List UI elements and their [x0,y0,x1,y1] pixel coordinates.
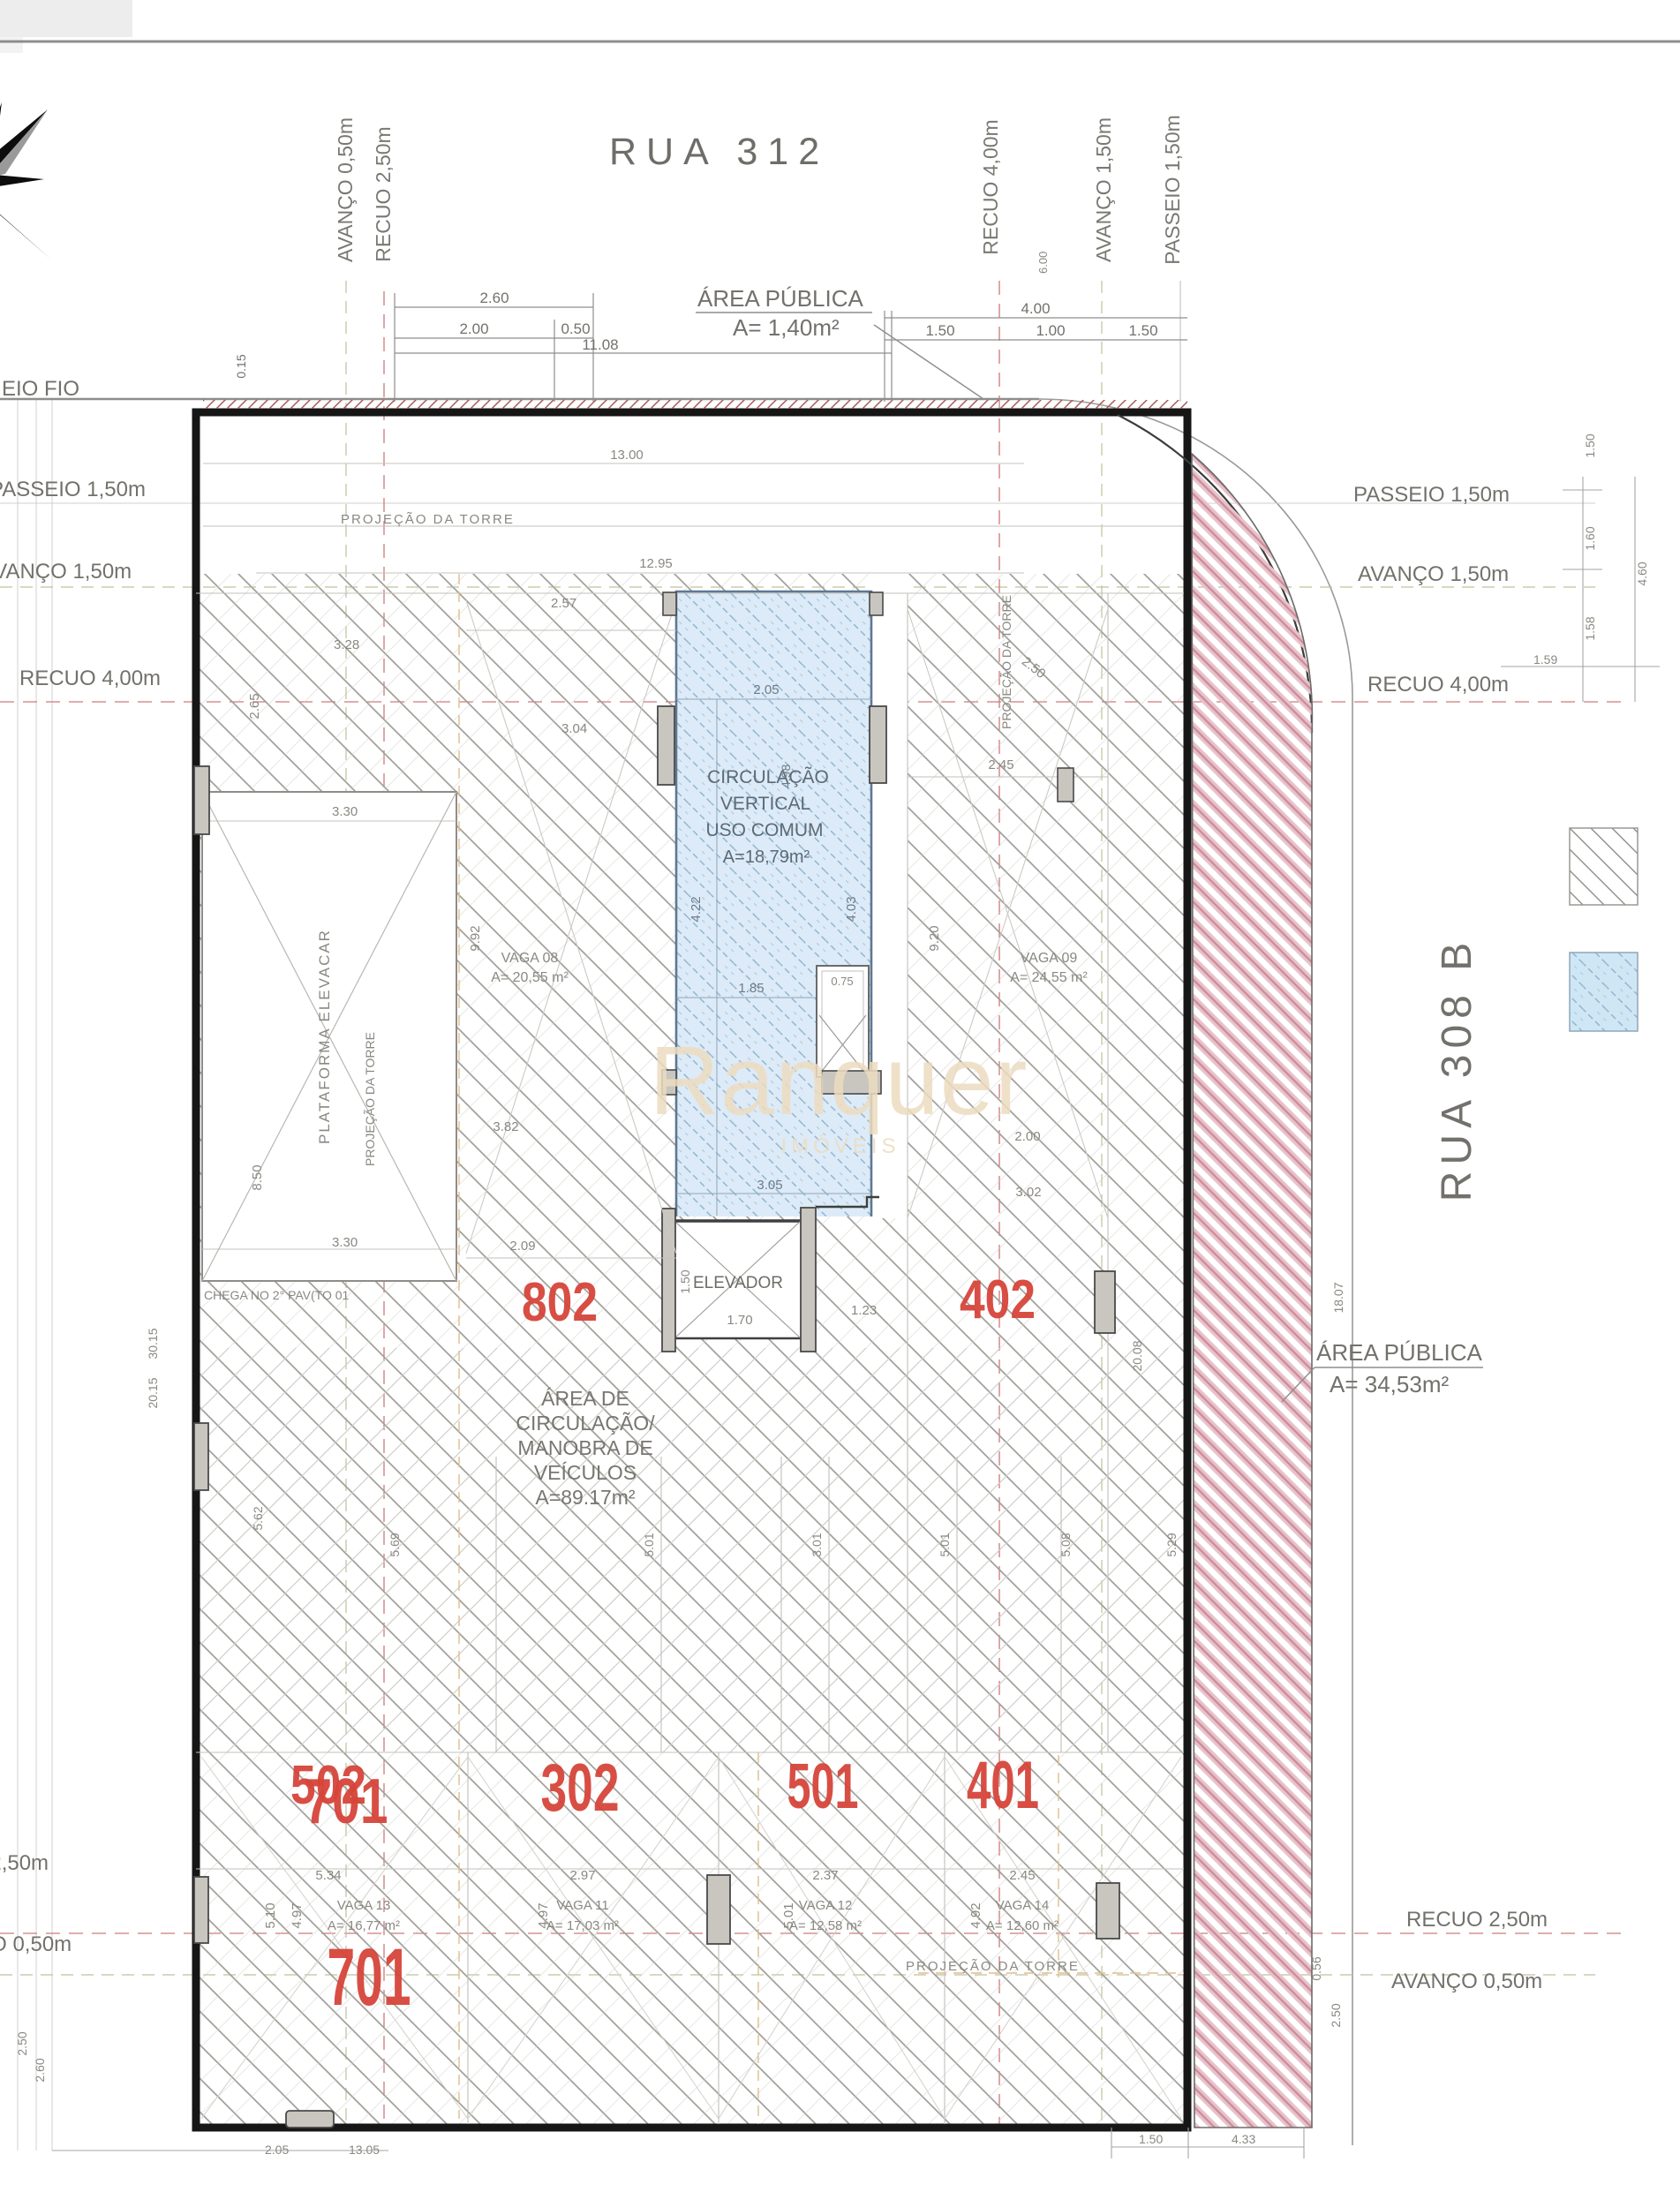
svg-text:5.01: 5.01 [938,1533,952,1556]
svg-text:0.56: 0.56 [1309,1956,1323,1980]
svg-text:1.58: 1.58 [1583,616,1597,640]
svg-text:18.07: 18.07 [1331,1282,1345,1313]
svg-text:A=89.17m²: A=89.17m² [535,1486,635,1509]
svg-text:3.82: 3.82 [493,1119,518,1134]
svg-text:RUA 312: RUA 312 [609,131,829,173]
svg-text:A= 12,58 m²: A= 12,58 m² [789,1918,862,1933]
svg-text:IMÓVEIS: IMÓVEIS [780,1134,900,1158]
svg-text:PLATAFORMA ELEVACAR: PLATAFORMA ELEVACAR [316,929,333,1144]
svg-text:0.15: 0.15 [234,354,248,378]
svg-text:20.08: 20.08 [1130,1340,1144,1371]
svg-text:9.92: 9.92 [468,925,483,951]
svg-text:RECUO 2,50m: RECUO 2,50m [1406,1908,1548,1932]
svg-text:EIO FIO: EIO FIO [2,377,79,401]
svg-text:AVANÇO 0,50m: AVANÇO 0,50m [334,117,357,262]
svg-text:USO COMUM: USO COMUM [706,820,824,840]
svg-text:CIRCULAÇÃO: CIRCULAÇÃO [707,766,829,787]
svg-text:A= 12,60 m²: A= 12,60 m² [986,1918,1058,1933]
svg-text:AVANÇO 1,50m: AVANÇO 1,50m [1358,562,1509,586]
svg-text:2.50: 2.50 [15,2031,29,2055]
svg-text:4.03: 4.03 [844,896,859,922]
svg-text:2.60: 2.60 [479,290,509,306]
svg-text:1.50: 1.50 [925,322,954,339]
svg-text:3.02: 3.02 [1015,1185,1041,1200]
svg-text:20.15: 20.15 [146,1377,160,1408]
svg-text:PASSEIO 1,50m: PASSEIO 1,50m [0,478,146,501]
svg-text:AVANÇO 0,50m: AVANÇO 0,50m [1391,1970,1542,1993]
svg-text:PROJEÇÃO DA TORRE: PROJEÇÃO DA TORRE [906,1959,1080,1974]
svg-text:11.08: 11.08 [582,336,618,353]
svg-text:ÁREA PÚBLICA: ÁREA PÚBLICA [697,285,864,312]
svg-text:1.59: 1.59 [1533,652,1557,667]
svg-text:A= 16,77 m²: A= 16,77 m² [328,1918,400,1933]
svg-text:PROJEÇÃO DA TORRE: PROJEÇÃO DA TORRE [341,512,515,527]
svg-text:2.50: 2.50 [1329,2003,1343,2027]
svg-text:3.04: 3.04 [561,721,587,736]
svg-text:3.05: 3.05 [757,1178,782,1193]
svg-text:5.01: 5.01 [781,1902,796,1928]
svg-text:5.10: 5.10 [263,1902,278,1928]
svg-text:3.30: 3.30 [332,804,358,819]
svg-text:4.60: 4.60 [1635,561,1649,585]
svg-text:3.30: 3.30 [332,1235,358,1250]
svg-text:VAGA 12: VAGA 12 [799,1898,853,1913]
svg-text:2.65: 2.65 [247,693,262,719]
svg-text:4.92: 4.92 [968,1902,983,1928]
svg-text:5.69: 5.69 [388,1533,402,1556]
svg-text:VAGA 11: VAGA 11 [556,1898,608,1913]
svg-text:PROJEÇÃO DA TORRE: PROJEÇÃO DA TORRE [999,595,1013,729]
svg-text:A= 24,55 m²: A= 24,55 m² [1010,970,1088,985]
svg-text:4.33: 4.33 [1232,2132,1255,2146]
svg-text:VEÍCULOS: VEÍCULOS [534,1461,637,1484]
svg-text:8.50: 8.50 [250,1164,265,1190]
svg-text:VAGA 13: VAGA 13 [337,1898,391,1913]
svg-text:2.09: 2.09 [509,1239,535,1254]
svg-text:5.34: 5.34 [315,1868,341,1883]
svg-text:0.75: 0.75 [831,975,853,988]
svg-text:4.98: 4.98 [779,765,793,788]
svg-text:A=18,79m²: A=18,79m² [723,847,810,867]
svg-text:30.15: 30.15 [146,1328,160,1359]
svg-text:13.00: 13.00 [610,448,644,463]
svg-text:AVANÇO 0,50m: AVANÇO 0,50m [0,1932,72,1956]
svg-text:1.50: 1.50 [1583,433,1597,457]
svg-text:PROJEÇÃO DA TORRE: PROJEÇÃO DA TORRE [363,1032,377,1166]
svg-text:CHEGA NO 2° PAV(TO 01: CHEGA NO 2° PAV(TO 01 [204,1288,350,1302]
svg-text:12.95: 12.95 [639,556,673,571]
svg-text:VAGA 09: VAGA 09 [1021,951,1078,966]
svg-text:VAGA 14: VAGA 14 [996,1898,1050,1913]
svg-text:5.29: 5.29 [1164,1533,1179,1556]
svg-text:302: 302 [541,1751,620,1826]
svg-text:VERTICAL: VERTICAL [720,794,810,814]
svg-text:PASSEIO 1,50m: PASSEIO 1,50m [1161,115,1184,265]
svg-text:AVANÇO 1,50m: AVANÇO 1,50m [0,560,132,584]
svg-text:VAGA 08: VAGA 08 [501,951,559,966]
svg-text:A= 17,03 m²: A= 17,03 m² [546,1918,619,1933]
svg-text:1.70: 1.70 [727,1313,752,1328]
svg-text:501: 501 [787,1751,859,1822]
svg-text:5.08: 5.08 [1058,1533,1073,1556]
svg-text:RECUO 4,00m: RECUO 4,00m [19,667,161,690]
svg-text:1.23: 1.23 [851,1303,877,1318]
svg-text:RECUO 2,50m: RECUO 2,50m [372,126,395,261]
svg-text:4.22: 4.22 [689,896,704,922]
svg-text:CIRCULAÇÃO/: CIRCULAÇÃO/ [516,1412,655,1435]
svg-text:5.01: 5.01 [642,1533,656,1556]
svg-text:5.62: 5.62 [251,1506,265,1530]
svg-text:4.97: 4.97 [536,1902,551,1928]
svg-text:2.05: 2.05 [753,682,779,697]
svg-text:A= 1,40m²: A= 1,40m² [733,314,840,341]
svg-text:RECUO 4,00m: RECUO 4,00m [979,119,1002,254]
svg-text:1.85: 1.85 [738,981,764,996]
svg-text:A= 20,55 m²: A= 20,55 m² [491,970,569,985]
svg-text:RECUO 4,00m: RECUO 4,00m [1367,673,1509,697]
svg-text:ÁREA DE: ÁREA DE [541,1387,629,1410]
svg-text:1.00: 1.00 [1036,322,1065,339]
svg-text:3.28: 3.28 [334,637,359,652]
svg-text:701: 701 [305,1766,388,1837]
svg-text:AVANÇO 1,50m: AVANÇO 1,50m [1092,117,1115,262]
svg-text:PASSEIO 1,50m: PASSEIO 1,50m [1353,483,1510,507]
svg-text:2.97: 2.97 [569,1868,595,1883]
svg-text:RECUO 2,50m: RECUO 2,50m [0,1851,49,1875]
svg-text:RUA 308 B: RUA 308 B [1434,937,1480,1201]
svg-text:401: 401 [967,1748,1039,1823]
svg-text:ELEVADOR: ELEVADOR [693,1274,783,1292]
svg-text:2.37: 2.37 [812,1868,838,1883]
svg-text:2.45: 2.45 [988,757,1013,772]
svg-text:ÁREA PÚBLICA: ÁREA PÚBLICA [1316,1339,1483,1366]
svg-text:9.20: 9.20 [927,925,942,951]
svg-text:2.45: 2.45 [1009,1868,1035,1883]
svg-text:802: 802 [522,1272,598,1333]
svg-text:2.57: 2.57 [551,596,576,611]
svg-text:A= 34,53m²: A= 34,53m² [1330,1371,1449,1397]
svg-text:4.97: 4.97 [290,1902,305,1928]
svg-text:1.60: 1.60 [1583,526,1597,550]
svg-text:6.00: 6.00 [1036,252,1050,274]
svg-text:Ranquer: Ranquer [650,1027,1028,1135]
svg-text:2.00: 2.00 [459,320,488,337]
svg-text:2.05: 2.05 [265,2143,289,2157]
svg-text:2.60: 2.60 [33,2058,47,2082]
svg-text:701: 701 [328,1932,411,2022]
svg-text:402: 402 [960,1269,1036,1330]
svg-text:13.05: 13.05 [349,2143,380,2157]
svg-text:0.50: 0.50 [561,320,590,337]
svg-text:MANOBRA DE: MANOBRA DE [517,1436,652,1459]
svg-text:1.50: 1.50 [1139,2132,1163,2146]
svg-text:1.50: 1.50 [1128,322,1157,339]
svg-text:1.50: 1.50 [678,1269,692,1293]
svg-text:3.01: 3.01 [810,1533,824,1556]
svg-text:4.00: 4.00 [1021,300,1050,317]
